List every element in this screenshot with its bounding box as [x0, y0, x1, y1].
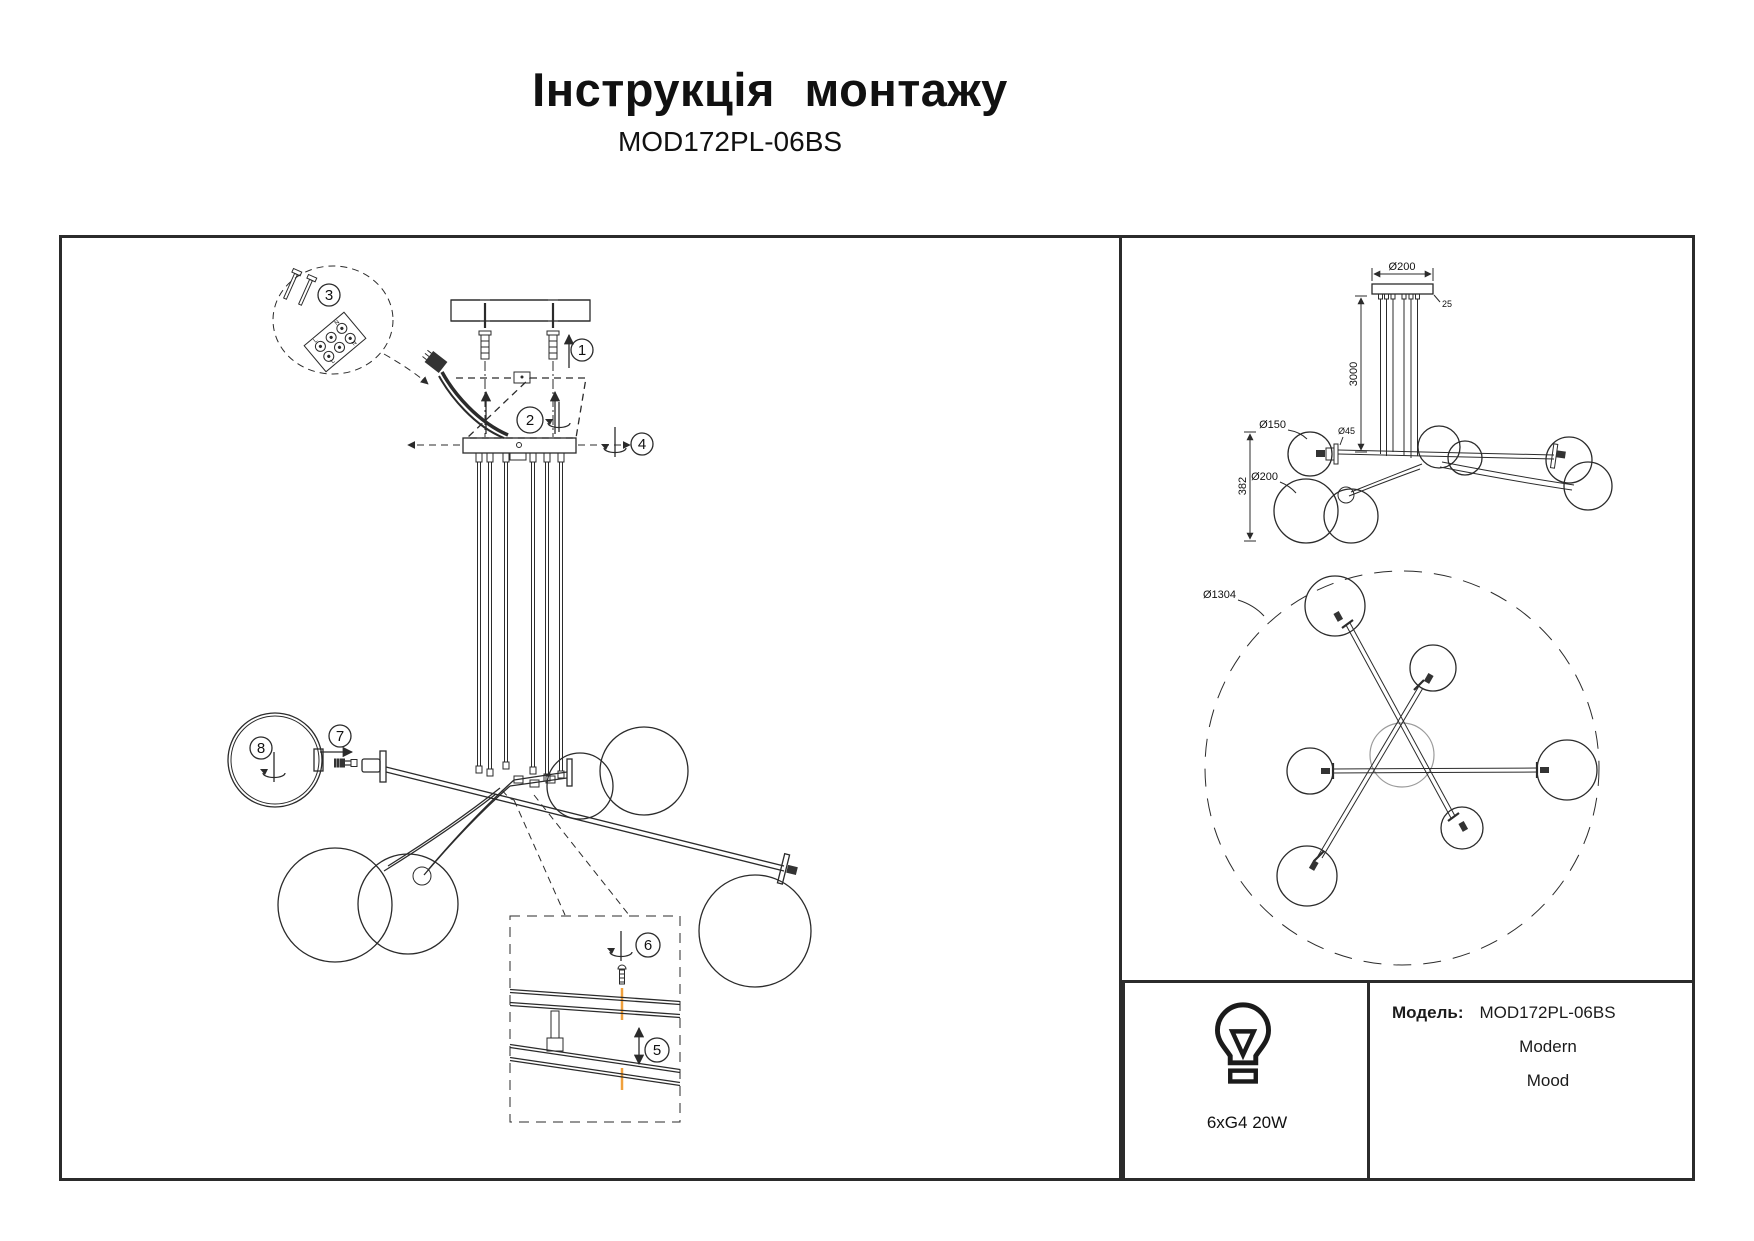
svg-text:3: 3 — [325, 287, 333, 304]
screw-icon — [618, 965, 626, 984]
rotate-icon — [601, 427, 626, 457]
terminal-balloon: L N L N 3 — [273, 266, 428, 384]
callout-7: 7 — [320, 725, 352, 752]
callout-2: 2 — [517, 402, 570, 433]
dim-suspension-length: 3000 — [1348, 362, 1360, 386]
dim-fixture-diameter: Ø1304 — [1203, 589, 1236, 601]
svg-text:4: 4 — [638, 436, 646, 453]
top-view: Ø1304 — [1203, 571, 1599, 965]
detail-leaders — [502, 790, 629, 915]
canopy — [456, 372, 586, 438]
rods — [1379, 294, 1420, 458]
svg-text:N: N — [351, 340, 358, 347]
screw-icon — [281, 269, 302, 301]
assembly-diagram-panel: 1 2 — [59, 235, 1122, 1181]
dim-canopy-height: 25 — [1442, 299, 1452, 309]
callout-4: 4 — [601, 427, 653, 457]
model-collection: Mood — [1488, 1071, 1608, 1091]
rotate-icon — [607, 931, 632, 961]
svg-text:2: 2 — [526, 412, 534, 429]
dim-globe-large: Ø200 — [1251, 471, 1278, 483]
detached-globe: 8 — [228, 713, 323, 807]
globe-bottom-left-front — [358, 854, 458, 954]
screw-icon — [296, 275, 317, 307]
g4-bulb-icon — [334, 759, 357, 768]
terminal-block: L N L N — [304, 312, 366, 371]
mounting-plate — [408, 438, 630, 460]
side-view: Ø200 25 3000 Ø150 — [1237, 261, 1612, 543]
dimensions-panel: Ø200 25 3000 Ø150 — [1122, 235, 1695, 983]
bulb-icon — [1197, 997, 1289, 1107]
model-label: Модель: — [1392, 1003, 1463, 1023]
page-title: Інструкція монтажу — [0, 62, 1540, 117]
dim-canopy-diameter: Ø200 — [1389, 261, 1416, 273]
instruction-sheet: Інструкція монтажу MOD172PL-06BS — [0, 0, 1754, 1241]
svg-text:6: 6 — [644, 937, 652, 954]
model-value: MOD172PL-06BS — [1479, 1003, 1615, 1023]
ceiling-section — [451, 299, 590, 322]
globe-top-right-front — [600, 727, 688, 815]
dim-socket-diameter: Ø45 — [1338, 426, 1355, 436]
detail-box: 6 — [510, 916, 680, 1122]
suspension-rods — [476, 453, 564, 781]
page-subtitle: MOD172PL-06BS — [0, 126, 1460, 158]
assembly-diagram: 1 2 — [62, 238, 1119, 1178]
svg-text:7: 7 — [336, 728, 344, 745]
supply-cable — [421, 348, 508, 438]
svg-text:5: 5 — [653, 1042, 661, 1059]
bulb-spec-text: 6xG4 20W — [1197, 1113, 1297, 1133]
globe-bottom-left-back — [278, 848, 392, 962]
lamp-spec-cell: 6xG4 20W — [1122, 983, 1370, 1181]
svg-text:N: N — [334, 319, 341, 326]
top-view-globes — [1277, 576, 1597, 906]
model-style: Modern — [1488, 1037, 1608, 1057]
callout-1: 1 — [569, 335, 593, 368]
globe-right — [699, 875, 811, 987]
dim-globe-small: Ø150 — [1259, 419, 1286, 431]
model-info-cell: Модель: MOD172PL-06BS Modern Mood — [1370, 983, 1695, 1181]
top-view-arms — [1309, 611, 1549, 871]
dimension-drawing: Ø200 25 3000 Ø150 — [1122, 238, 1692, 983]
svg-text:8: 8 — [257, 740, 265, 757]
lamp-socket-post — [547, 1011, 563, 1051]
svg-text:L: L — [313, 337, 320, 344]
svg-text:1: 1 — [578, 342, 586, 359]
rotate-icon — [545, 402, 570, 432]
dim-body-height: 382 — [1237, 477, 1249, 495]
